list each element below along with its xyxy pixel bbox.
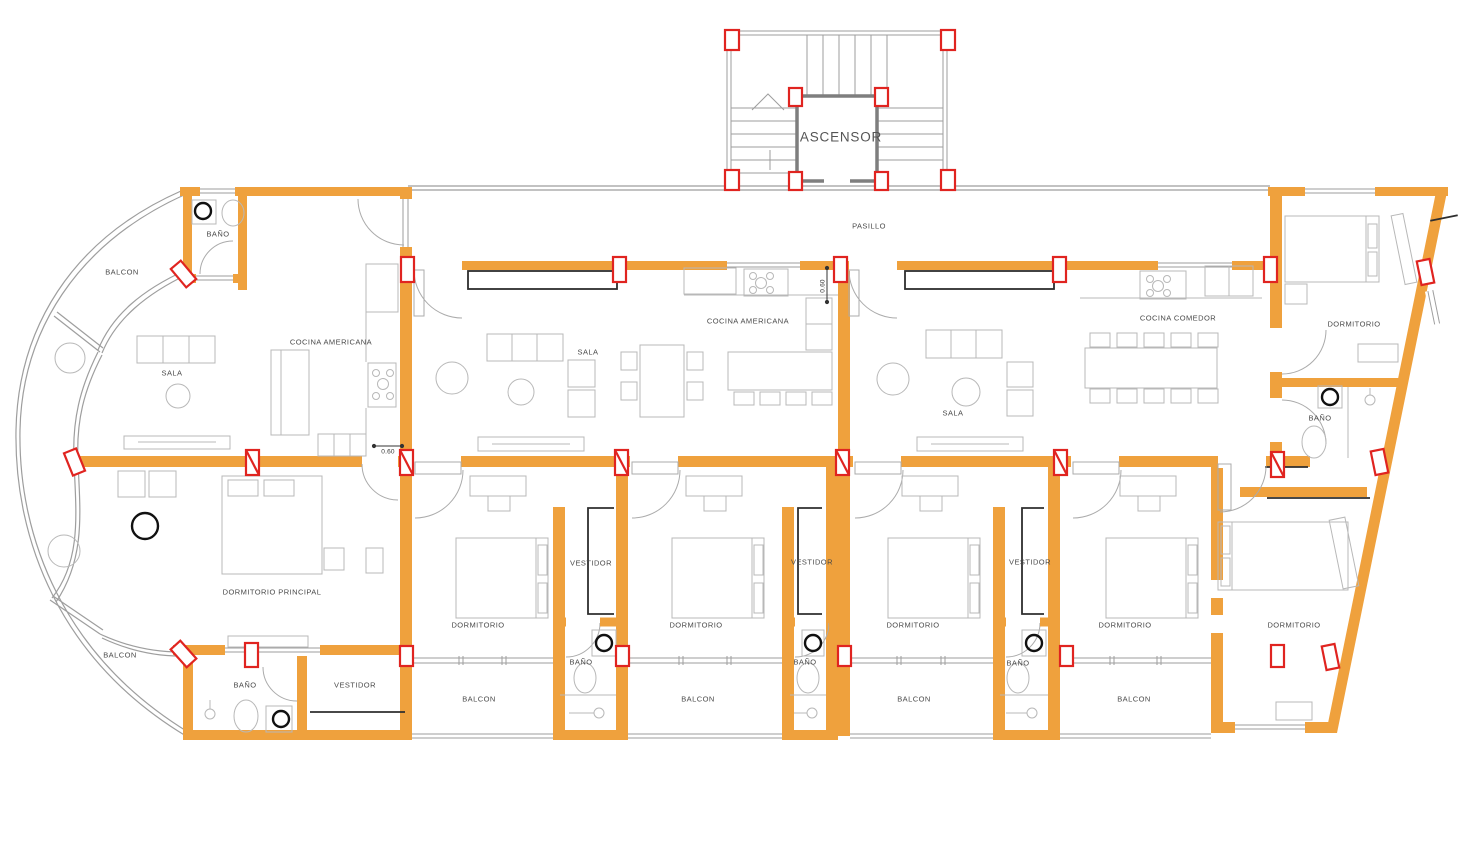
floor-plan: ASCENSOR PASILLO BAÑO BALCON COCINA AMER… [0,0,1467,863]
room-label-balcon-1: BALCON [462,695,496,704]
room-label-cocina-americana-2: COCINA AMERICANA [707,317,789,326]
room-label-sala-2: SALA [578,348,599,357]
room-label-vestidor-bottom-left: VESTIDOR [334,681,376,690]
stairwell [727,31,947,187]
cocina-2-furniture [684,268,838,405]
room-label-cocina-americana-1: COCINA AMERICANA [290,338,372,347]
cocina-1-furniture [271,264,398,456]
room-label-banio-right: BAÑO [1308,414,1331,423]
balcony-window-bands [412,656,1211,738]
room-label-dormitorio-1: DORMITORIO [451,621,504,630]
banio-1-fixtures [560,630,616,718]
room-label-pasillo: PASILLO [852,222,886,231]
room-label-dormitorio-5: DORMITORIO [1267,621,1320,630]
cocina-comedor-furniture [1080,266,1262,403]
room-label-vestidor-3: VESTIDOR [1009,558,1051,567]
room-label-banio-bottom-left: BAÑO [233,681,256,690]
room-label-dormitorio-4: DORMITORIO [1098,621,1151,630]
room-label-balcon-bottom-left: BALCON [103,651,137,660]
room-label-banio-3: BAÑO [1006,659,1029,668]
dormitorio-3-furniture [888,476,980,618]
floor-plan-drawing [0,0,1467,863]
sala-2-furniture [436,334,703,451]
sink-icon [805,635,821,651]
room-label-dormitorio-2: DORMITORIO [669,621,722,630]
sink-icon [596,635,612,651]
round-table-icon [132,513,158,539]
room-label-banio-2: BAÑO [793,658,816,667]
dimension-lines [372,266,828,447]
dim-label-vertical: 0.60 [820,279,827,292]
room-label-dormitorio-top-right: DORMITORIO [1327,320,1380,329]
room-label-balcon-4: BALCON [1117,695,1151,704]
room-label-dormitorio-principal: DORMITORIO PRINCIPAL [223,588,322,597]
room-label-balcon-3: BALCON [897,695,931,704]
room-label-vestidor-2: VESTIDOR [791,558,833,567]
room-label-banio-top-left: BAÑO [206,230,229,239]
room-label-cocina-comedor: COCINA COMEDOR [1140,314,1216,323]
dormitorio-2-furniture [672,476,764,618]
room-label-ascensor: ASCENSOR [800,130,882,145]
doors [200,199,1326,701]
dormitorio-1-furniture [456,476,548,618]
dormitorio-4-furniture [1106,476,1198,618]
room-label-banio-1: BAÑO [569,658,592,667]
sink-icon [1322,389,1338,405]
room-label-dormitorio-3: DORMITORIO [886,621,939,630]
room-label-balcon-2: BALCON [681,695,715,704]
room-label-sala-1: SALA [162,369,183,378]
sink-icon [273,711,289,727]
sink-icon [195,203,211,219]
dim-label-horizontal: 0.60 [381,449,394,456]
room-label-vestidor-1: VESTIDOR [570,559,612,568]
sala-3-furniture [877,330,1033,451]
room-label-balcon-top-left: BALCON [105,268,139,277]
dormitorio-tr-furniture [1285,214,1417,362]
room-label-sala-3: SALA [943,409,964,418]
dormitorio-principal-furniture [48,471,383,647]
